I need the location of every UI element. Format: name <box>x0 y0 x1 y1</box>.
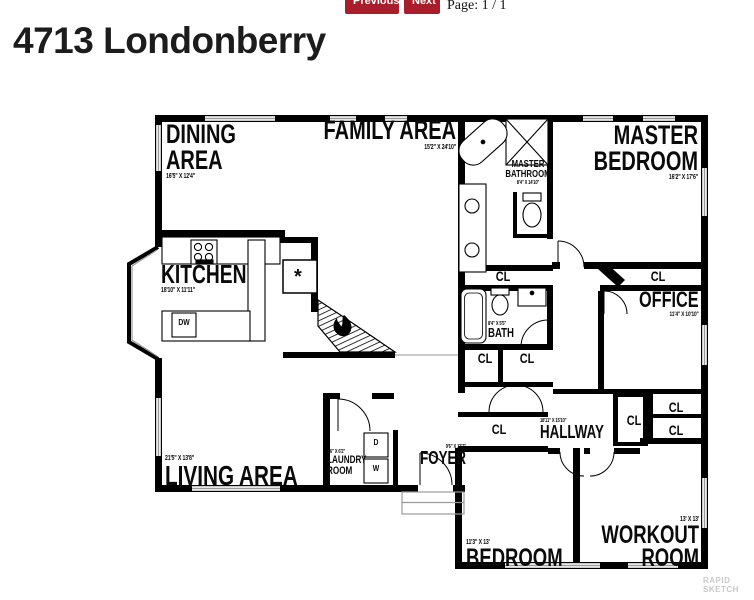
room-label-bath: 8'4" X 5'5" BATH <box>488 321 514 340</box>
closet-label-5: CL <box>487 421 510 437</box>
room-label-foyer: 9'6" X 13'7" FOYER <box>420 444 466 467</box>
dryer-label: D <box>366 438 386 447</box>
closet-label-4: CL <box>515 350 538 366</box>
washer-label: W <box>366 464 386 473</box>
bay-window <box>129 247 158 359</box>
room-label-master-bathroom: MASTER BATHROOM 8'4" X 14'10" <box>504 160 551 186</box>
floorplan: DINING AREA 16'5" X 12'4" FAMILY AREA 15… <box>0 0 754 600</box>
closet-label-1: CL <box>491 268 514 284</box>
watermark-line1: RAPID <box>703 576 739 585</box>
porch-steps <box>402 492 464 514</box>
fireplace-marker: * <box>294 266 302 289</box>
room-label-hallway: 18'11" X 15'10" HALLWAY <box>540 418 604 441</box>
watermark-line2: SKETCH <box>703 585 739 594</box>
walls-group <box>155 115 708 569</box>
windows-group <box>156 116 707 568</box>
room-label-dining: DINING AREA 16'5" X 12'4" <box>166 122 262 181</box>
room-label-living: 21'5" X 13'8" LIVING AREA <box>165 455 298 489</box>
room-label-workout: 13' X 13' WORKOUT ROOM <box>595 516 699 571</box>
room-label-laundry: 4'6" X 6'2" LAUNDRY ROOM <box>327 449 361 476</box>
room-label-family: FAMILY AREA 15'2" X 24'10" <box>324 118 456 151</box>
closet-label-2: CL <box>646 268 669 284</box>
closet-label-7: CL <box>664 399 687 415</box>
closet-label-8: CL <box>664 422 687 438</box>
dishwasher-label: DW <box>174 318 194 327</box>
watermark-logo: RAPID SKETCH <box>703 576 739 594</box>
closet-label-6: CL <box>622 412 645 428</box>
room-label-bedroom: 11'3" X 13' BEDROOM <box>466 539 563 570</box>
closet-label-3: CL <box>473 350 496 366</box>
room-label-master-bedroom: MASTER BEDROOM 16'2" X 17'6" <box>587 123 698 182</box>
room-label-kitchen: KITCHEN 18'10" X 11'11" <box>161 262 247 294</box>
room-label-office: OFFICE 11'4" X 10'10" <box>639 290 699 318</box>
